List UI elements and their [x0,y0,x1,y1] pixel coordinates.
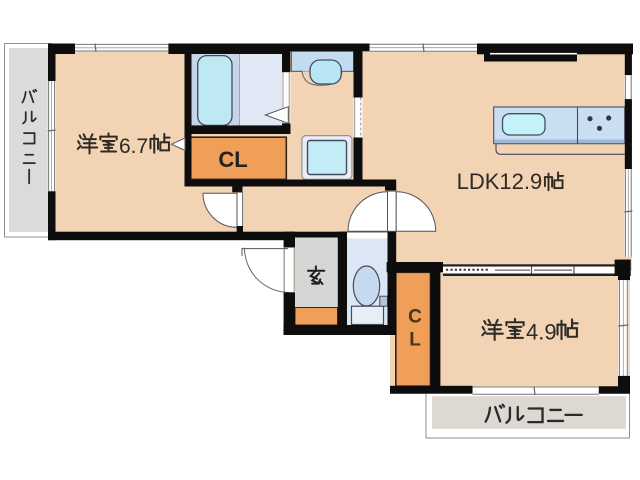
svg-text:C: C [408,307,422,328]
svg-text:CL: CL [218,147,247,172]
svg-text:4.9: 4.9 [526,320,557,345]
svg-text:LDK12.9: LDK12.9 [457,169,543,194]
svg-text:L: L [409,330,421,351]
svg-text:6.7: 6.7 [119,135,148,158]
